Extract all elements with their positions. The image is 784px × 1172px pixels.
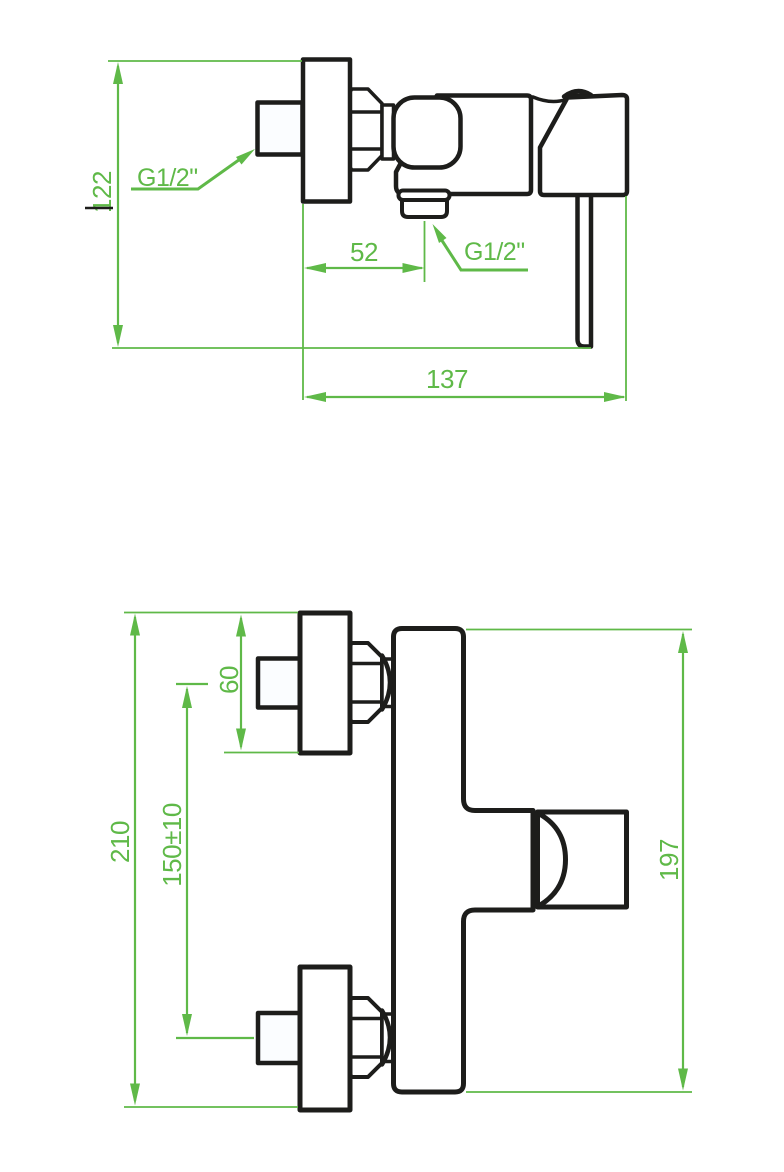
front-view-figure xyxy=(258,613,627,1110)
arrow-210-up xyxy=(130,614,140,636)
front-mixer-body xyxy=(394,629,534,1093)
dim-197-label: 197 xyxy=(654,839,684,881)
side-handle-lever-rod xyxy=(578,194,592,347)
dim-137-label: 137 xyxy=(426,364,468,394)
technical-drawing-page: 122 G1/2" 52 G1/2" 137 xyxy=(0,0,784,1172)
arrow-52-right xyxy=(403,263,425,273)
arrow-52-left xyxy=(304,263,326,273)
side-handle-head xyxy=(540,95,627,195)
side-view-figure xyxy=(258,60,628,347)
dim-210-label: 210 xyxy=(105,821,135,863)
front-bottom-hex-nut xyxy=(348,998,382,1077)
arrow-122-up xyxy=(113,62,123,84)
dim-150-label: 150±10 xyxy=(157,803,187,887)
arrow-137-right xyxy=(604,392,626,402)
side-cartridge-knob xyxy=(394,98,461,168)
front-top-hex-nut xyxy=(348,643,382,722)
arrow-60-down xyxy=(236,729,246,751)
dim-60-label: 60 xyxy=(214,666,244,694)
inlet-thread-label: G1/2" xyxy=(137,164,198,192)
arrow-150-down xyxy=(182,1014,192,1036)
side-hex-nut xyxy=(349,89,383,170)
dim-52-label: 52 xyxy=(350,237,378,267)
front-top-pipe-stub xyxy=(258,659,300,708)
side-inlet-pipe-stub xyxy=(258,103,303,155)
outlet-thread-label: G1/2" xyxy=(464,238,525,266)
side-wall-flange xyxy=(303,60,350,202)
side-spout-outlet xyxy=(402,200,447,217)
arrow-210-down xyxy=(130,1084,140,1106)
arrow-outlet-thread xyxy=(433,224,447,243)
arrow-60-up xyxy=(236,615,246,637)
arrow-197-down xyxy=(678,1069,688,1091)
front-bottom-wall-flange xyxy=(300,967,350,1110)
front-bottom-pipe-stub xyxy=(258,1013,300,1063)
arrow-inlet-thread xyxy=(236,149,255,165)
dim-122-label: 122 xyxy=(87,171,117,213)
arrow-150-up xyxy=(182,686,192,708)
arrow-197-up xyxy=(678,631,688,653)
side-body-handle-fillet xyxy=(533,97,566,102)
front-handle-head xyxy=(538,812,627,907)
shower-mixer-dimension-drawing: 122 G1/2" 52 G1/2" 137 xyxy=(0,0,784,1172)
arrow-122-down xyxy=(113,325,123,347)
front-top-wall-flange xyxy=(300,613,350,753)
arrow-137-left xyxy=(304,392,326,402)
